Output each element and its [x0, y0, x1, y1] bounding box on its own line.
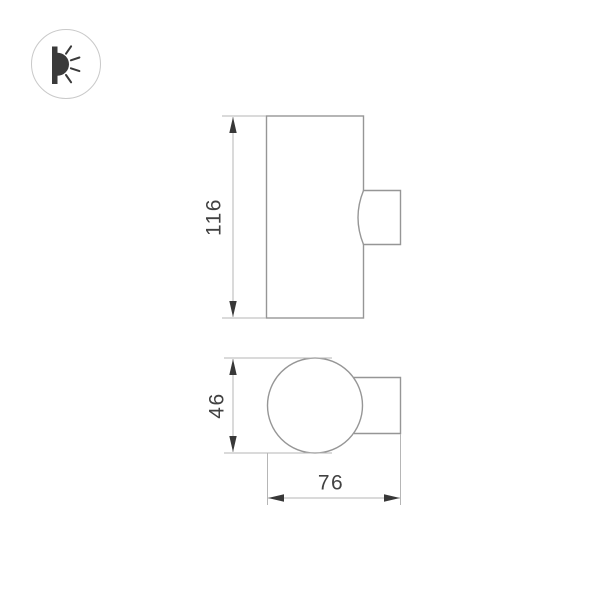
- depth-dimension-label: 76: [318, 472, 344, 495]
- arrowhead-up: [229, 359, 236, 375]
- mount-bracket-front: [358, 191, 401, 245]
- lamp-body-front: [267, 116, 364, 318]
- arrowhead-left: [268, 494, 284, 501]
- top-view: [268, 358, 401, 453]
- front-height-dimension: 116: [203, 116, 267, 318]
- diameter-dimension-label: 46: [206, 392, 229, 418]
- front-view: [267, 116, 401, 318]
- arrowhead-up: [229, 117, 236, 133]
- drawing-canvas: 116 46 76: [0, 0, 600, 600]
- arrowhead-down: [229, 301, 236, 317]
- arrowhead-down: [229, 436, 236, 452]
- height-dimension-label: 116: [203, 198, 226, 236]
- technical-drawing: 116 46 76: [0, 0, 600, 600]
- arrowhead-right: [384, 494, 400, 501]
- lamp-body-top: [268, 358, 363, 453]
